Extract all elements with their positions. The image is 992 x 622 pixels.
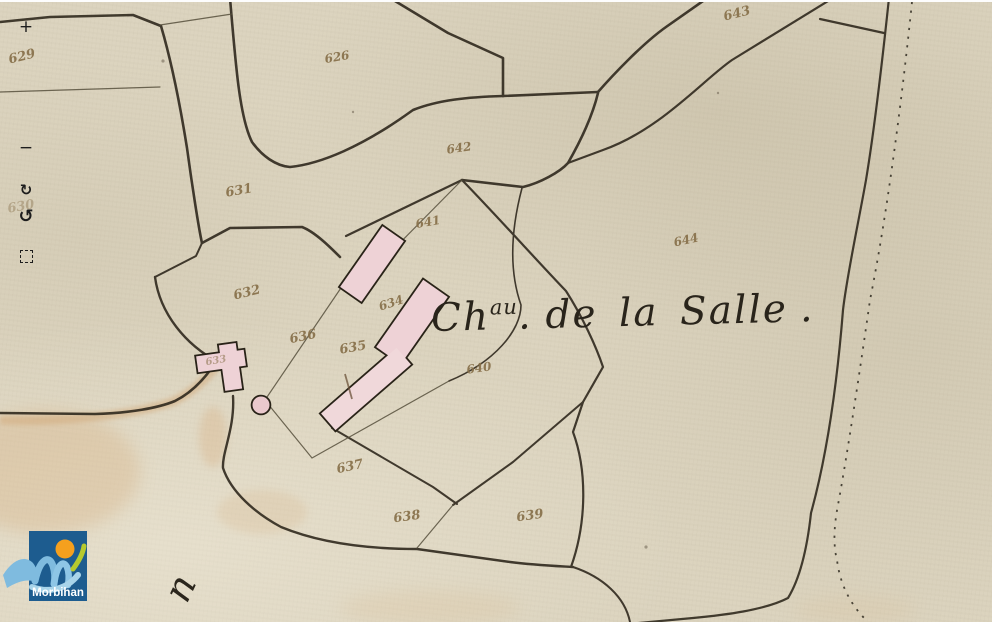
dotted-path [834,2,912,620]
logo-text: Morbihan [32,587,84,599]
sun-icon [56,540,75,559]
parcel-boundaries [0,0,889,622]
zoom-in-button[interactable]: + [15,16,37,38]
morbihan-logo: Morbihan [26,528,90,604]
extent-icon [20,250,33,263]
rotate-clockwise-button[interactable]: ↻ [15,179,37,201]
rotate-counterclockwise-button[interactable]: ↺ [15,205,37,227]
zoom-extent-button[interactable] [15,245,37,267]
zoom-out-button[interactable]: − [15,137,37,159]
top-border [0,0,992,2]
road-wash [0,367,915,622]
map-viewer: 6296266436426316306416446326346366356336… [0,0,992,622]
map-canvas[interactable] [0,0,992,622]
